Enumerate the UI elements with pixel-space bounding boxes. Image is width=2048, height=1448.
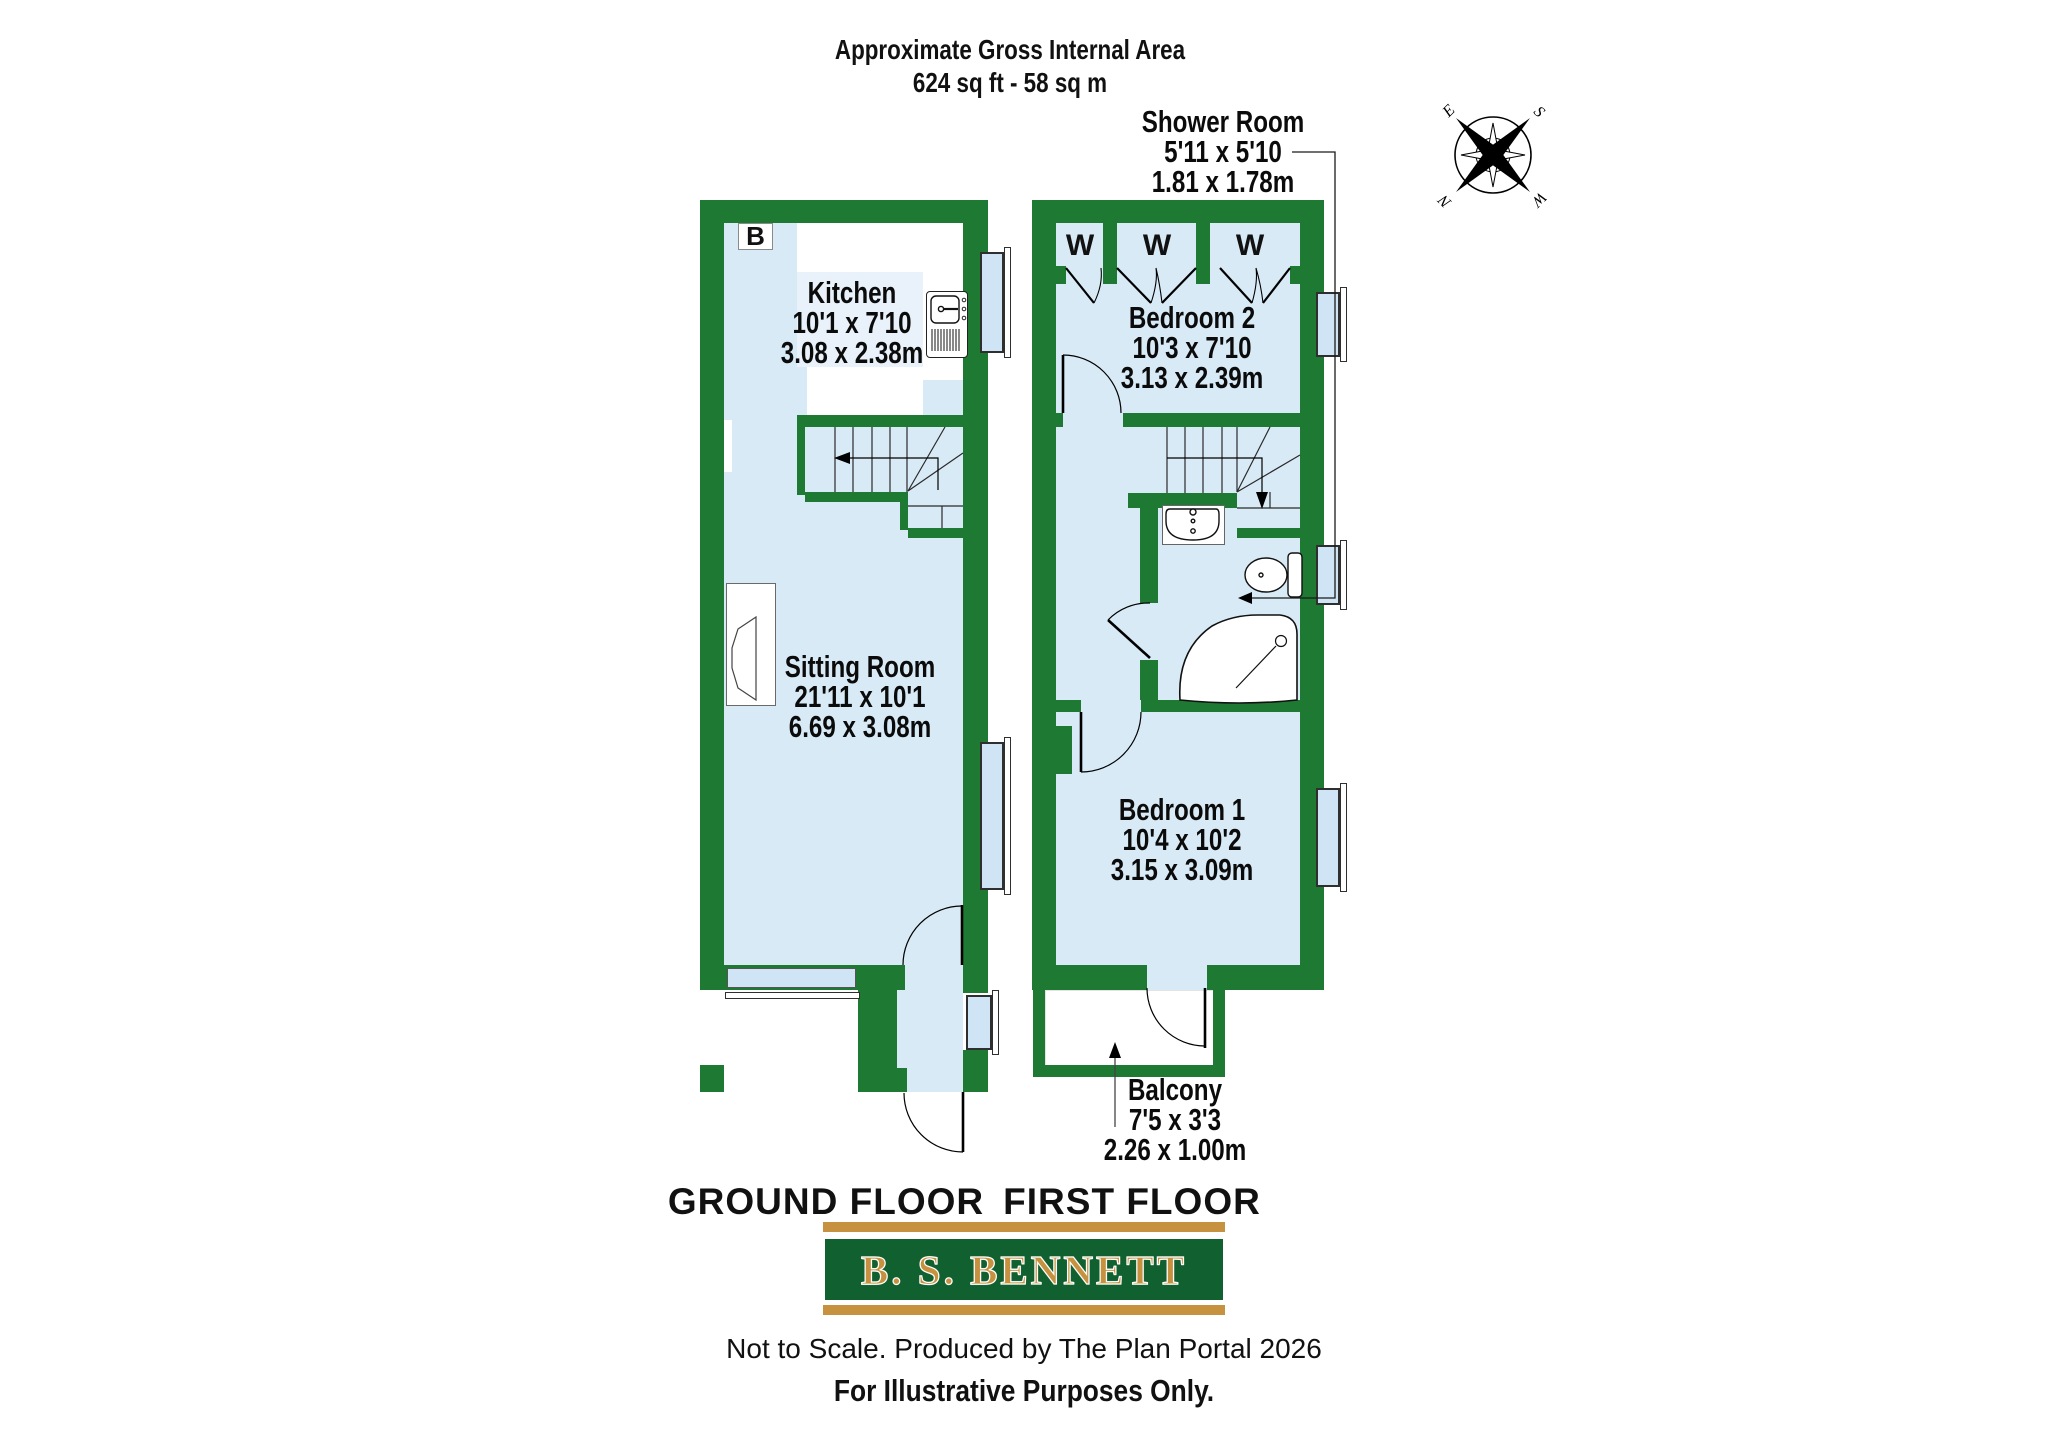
footer: Not to Scale. Produced by The Plan Porta…	[0, 0, 2048, 1448]
disclaimer-line2: For Illustrative Purposes Only.	[834, 1373, 1214, 1409]
floorplan-page: B	[0, 0, 2048, 1448]
disclaimer-line1: Not to Scale. Produced by The Plan Porta…	[726, 1333, 1322, 1365]
